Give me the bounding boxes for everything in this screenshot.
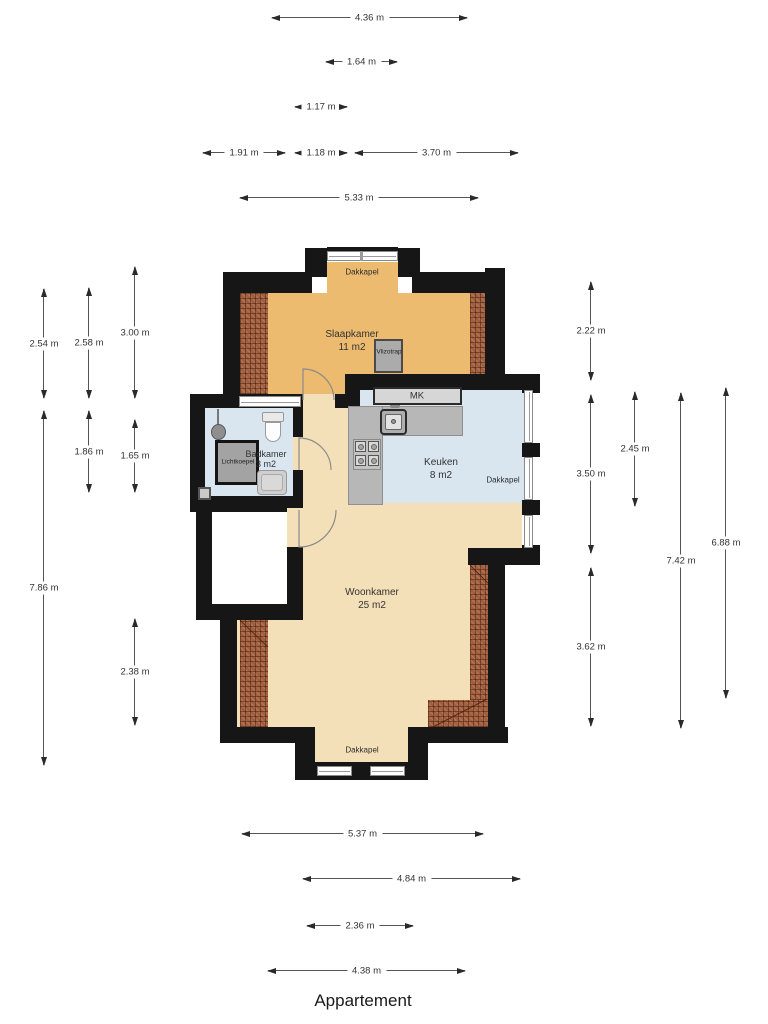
- room-area: 11 m2: [325, 341, 378, 354]
- badkamer-label: Badkamer 3 m2: [245, 449, 286, 469]
- room-area: 25 m2: [345, 599, 399, 612]
- keuken-label: Keuken 8 m2: [424, 456, 458, 482]
- floorplan-appartement: 4.36 m 1.64 m 1.17 m 1.91 m 1.18 m 3.70 …: [0, 0, 768, 1024]
- room-name: Woonkamer: [345, 586, 399, 599]
- roof-hip-line-right: [433, 699, 487, 727]
- room-area: 3 m2: [245, 459, 286, 469]
- room-name: Keuken: [424, 456, 458, 469]
- door-entry: [299, 510, 336, 547]
- door-badkamer: [299, 438, 331, 470]
- page-title: Appartement: [314, 991, 411, 1011]
- dakkapel-bottom-label: Dakkapel: [345, 746, 378, 755]
- room-name: Badkamer: [245, 449, 286, 459]
- woonkamer-label: Woonkamer 25 m2: [345, 586, 399, 612]
- door-slaapkamer: [303, 369, 334, 400]
- dakkapel-top-label: Dakkapel: [345, 268, 378, 277]
- room-name: Slaapkamer: [325, 328, 378, 341]
- roof-hip-line-right-top: [470, 565, 488, 583]
- slaapkamer-label: Slaapkamer 11 m2: [325, 328, 378, 354]
- dakkapel-right-label: Dakkapel: [486, 476, 519, 485]
- door-swing-overlay: [0, 0, 768, 1024]
- room-area: 8 m2: [424, 469, 458, 482]
- roof-hip-line-left: [240, 620, 268, 647]
